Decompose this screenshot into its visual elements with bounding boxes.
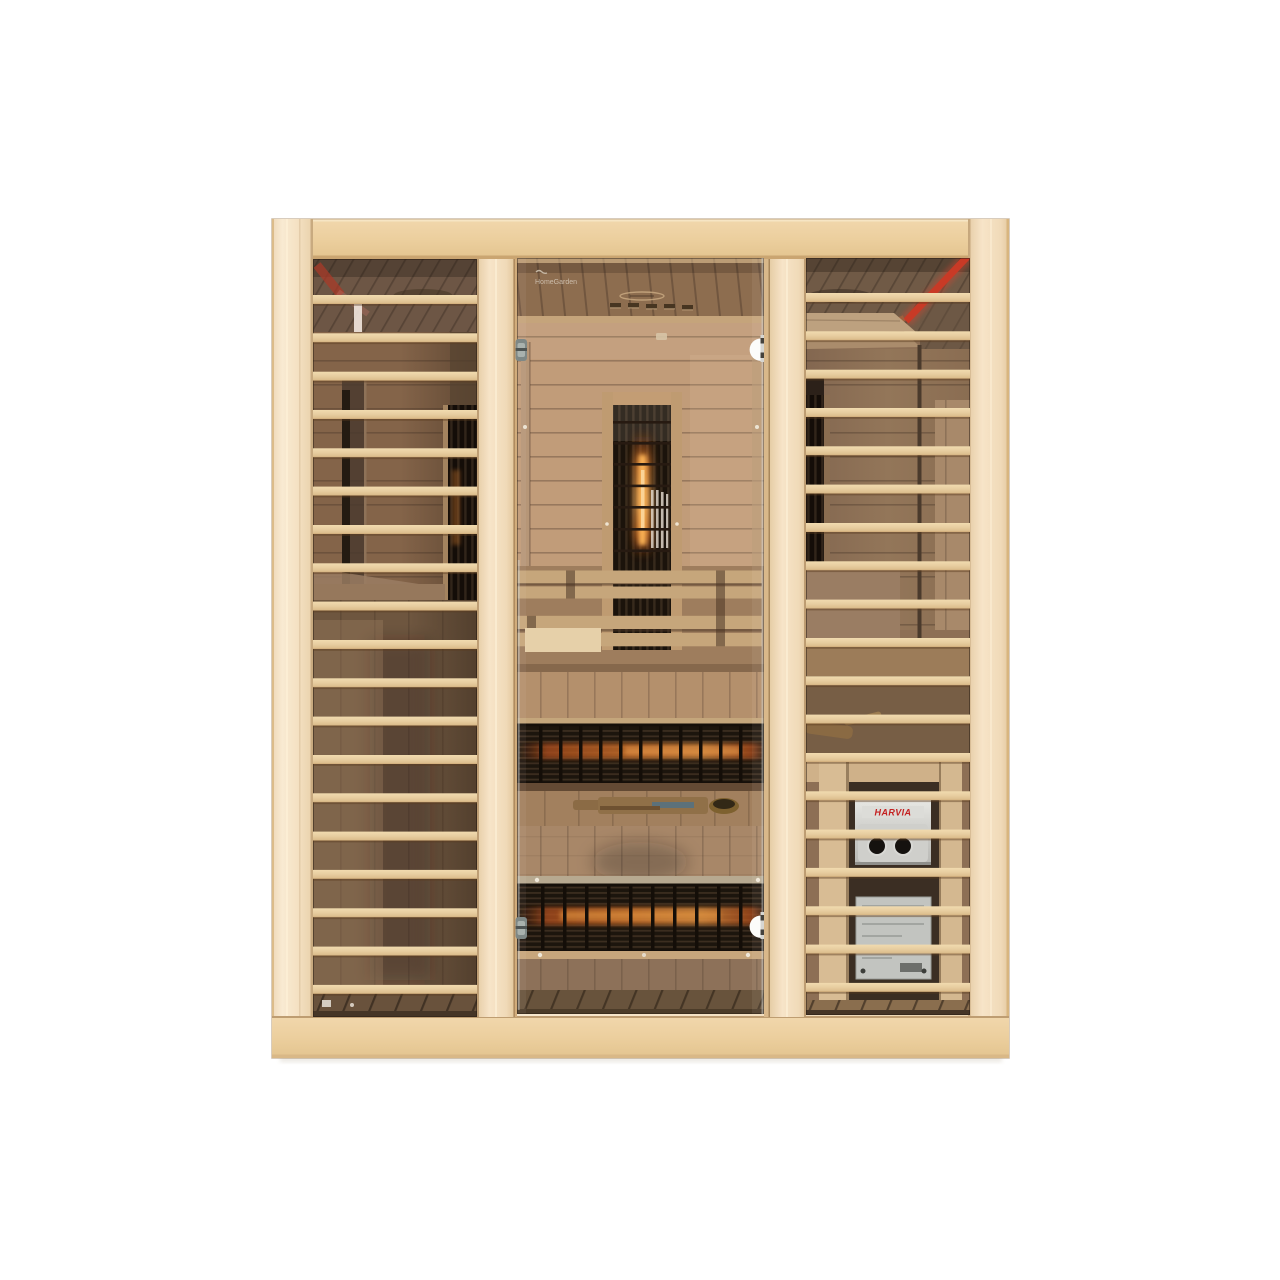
svg-text:HARVIA: HARVIA <box>875 808 912 818</box>
